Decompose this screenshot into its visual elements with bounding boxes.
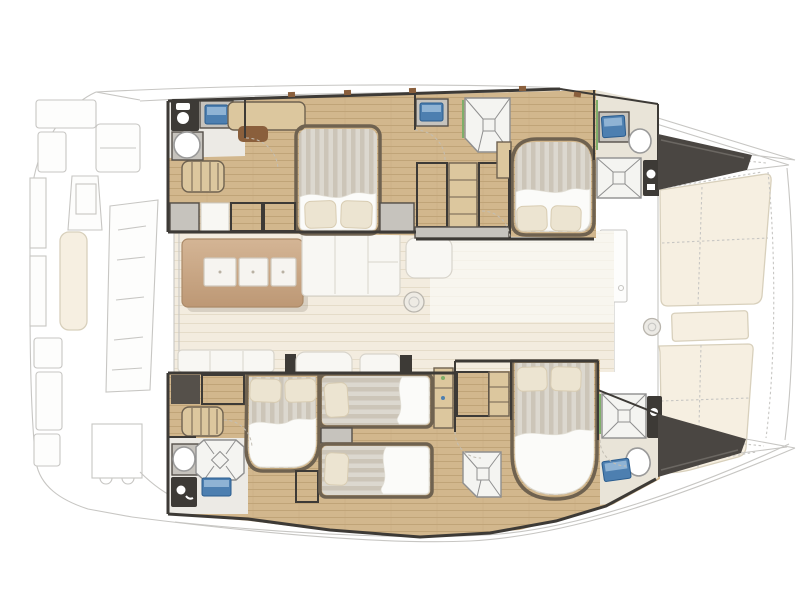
cockpit-bench-cushion: [60, 232, 87, 330]
faucet-dot: [282, 271, 285, 274]
port-steps: [182, 161, 224, 192]
port-aft-bed: [296, 126, 380, 234]
dark-cabinet: [171, 375, 200, 404]
pillow: [324, 382, 349, 418]
cabinet: [170, 203, 199, 231]
toilet-bowl: [647, 170, 656, 179]
pillow: [517, 205, 548, 231]
galley-sink-modules: [204, 258, 296, 286]
dining-table-outline: [92, 424, 142, 478]
faucet-dot: [219, 271, 222, 274]
single-berth-2: [320, 444, 432, 497]
bow-crossline: [785, 168, 793, 440]
pillow: [305, 200, 337, 228]
pillow: [324, 452, 349, 485]
pillow: [341, 200, 373, 228]
shelf-item: [441, 396, 445, 400]
nightstand: [321, 428, 352, 443]
transom-step: [34, 338, 62, 368]
bed-sheet: [381, 447, 429, 494]
transom-step: [36, 100, 96, 128]
transom-step: [38, 132, 66, 172]
starboard-aft-bed: [246, 374, 319, 471]
port-sunpad: [660, 174, 771, 306]
sink-water: [204, 480, 229, 487]
port-forward-bed: [497, 139, 594, 235]
washbasin: [173, 447, 195, 471]
chaise-daybed: [406, 238, 452, 278]
pillow: [551, 366, 582, 391]
toilet-bowl: [177, 112, 189, 124]
desk: [228, 102, 305, 130]
locker-base: [415, 227, 509, 238]
floor-hatch: [404, 292, 424, 312]
washbasin: [174, 132, 200, 158]
cabinet: [380, 203, 414, 233]
sink-water: [207, 107, 226, 115]
shelf-item: [441, 376, 445, 380]
faucet-dot: [252, 271, 255, 274]
starboard-steps: [182, 407, 223, 436]
saloon-floor-light-zone: [430, 231, 614, 322]
desk-chair: [238, 126, 268, 142]
l-sofa: [302, 227, 400, 296]
single-berth-1: [320, 374, 432, 427]
swim-platform: [30, 256, 46, 326]
toilet-lid: [176, 103, 190, 110]
sink-water: [422, 105, 441, 112]
bed-sheet: [249, 418, 316, 467]
toilet-lid: [647, 184, 655, 190]
shelf-unit: [489, 372, 509, 416]
washbasin: [629, 129, 651, 153]
yacht-deck-plan: [0, 0, 800, 600]
cabinet: [201, 203, 229, 231]
transom-step: [36, 372, 62, 430]
octagon-shower: [196, 440, 244, 480]
aft-bench: [178, 350, 274, 372]
sink-water: [604, 117, 623, 126]
bed-sheet: [515, 429, 594, 494]
long-cockpit-table: [106, 200, 158, 392]
starboard-hull: [168, 360, 746, 537]
deck-edge: [96, 92, 140, 100]
swim-platform: [30, 178, 46, 248]
center-step-pad: [672, 311, 749, 342]
aft-cockpit-ghost: [30, 92, 180, 517]
pillow: [551, 205, 582, 231]
transom-step: [34, 434, 60, 466]
side-shelf: [497, 142, 511, 178]
toilet-bowl: [177, 486, 186, 495]
starboard-forward-bed: [512, 361, 597, 499]
pillow: [517, 366, 548, 391]
winch: [644, 319, 661, 336]
pillow: [285, 378, 317, 402]
seat-backs: [100, 478, 134, 484]
bed-sheet: [397, 377, 429, 424]
pillow: [250, 378, 282, 402]
